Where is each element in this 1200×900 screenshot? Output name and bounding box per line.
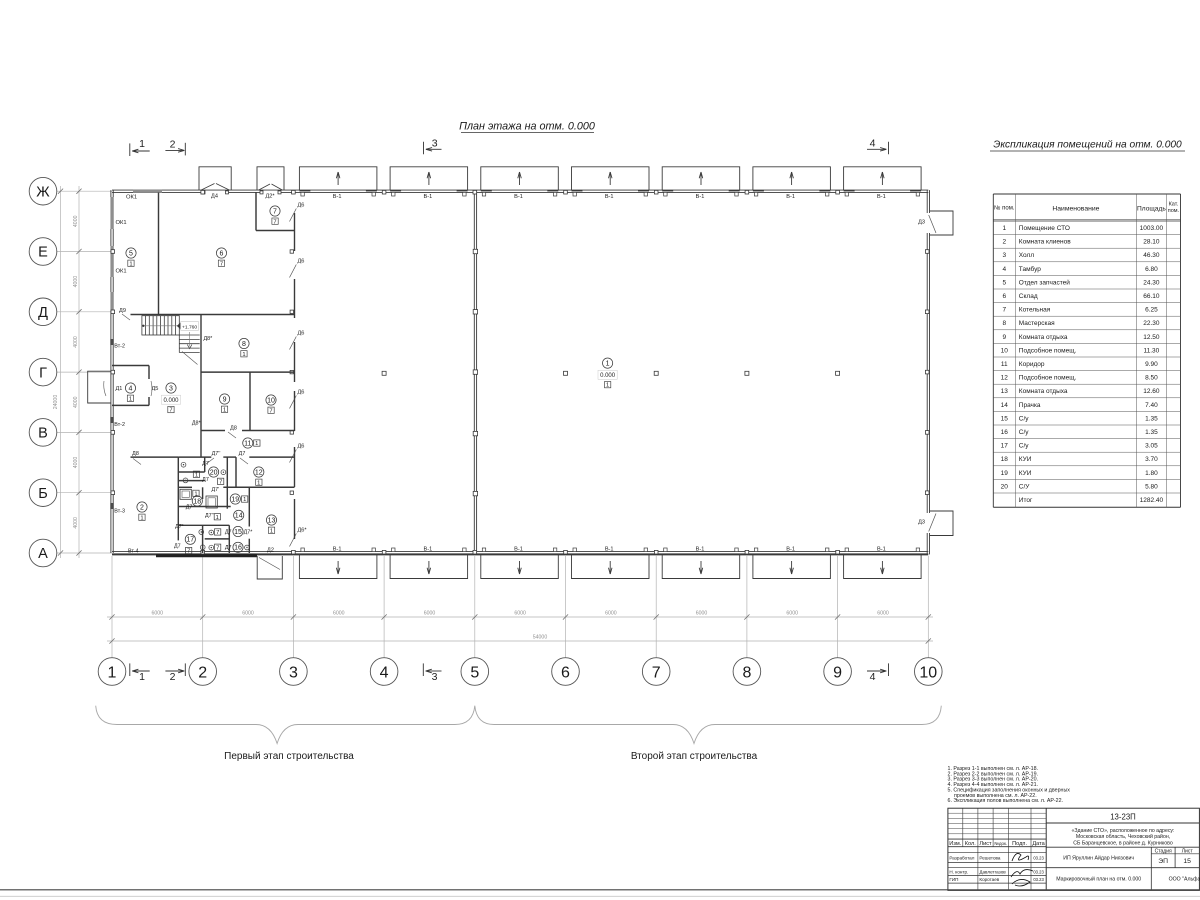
svg-text:Д6*: Д6* [298,528,308,534]
svg-text:ОК1: ОК1 [126,195,137,201]
svg-text:Д7: Д7 [239,451,246,457]
svg-text:3: 3 [432,138,438,150]
svg-text:+1.760: +1.760 [182,324,197,330]
svg-text:Коридор: Коридор [1019,361,1045,368]
svg-text:1003.00: 1003.00 [1140,225,1164,232]
svg-text:24000: 24000 [53,395,59,410]
svg-text:9.90: 9.90 [1145,361,1158,368]
svg-text:14: 14 [1001,402,1009,409]
svg-text:Вт-2: Вт-2 [114,422,125,428]
svg-text:№ пом.: № пом. [994,205,1015,212]
svg-text:6. Экспликация полов выполнена: 6. Экспликация полов выполнена см. л. АР… [948,798,1064,804]
svg-text:7.40: 7.40 [1145,402,1158,409]
svg-text:19: 19 [1001,470,1009,477]
svg-text:1: 1 [194,491,197,497]
svg-text:1: 1 [129,261,132,267]
svg-text:1: 1 [216,515,219,521]
svg-text:24.30: 24.30 [1143,279,1160,286]
svg-text:6.80: 6.80 [1145,266,1158,273]
svg-text:4000: 4000 [73,396,79,408]
svg-text:Д6: Д6 [298,390,305,396]
svg-text:«Здание СТО», расположенное по: «Здание СТО», расположенное по адресу: [1072,828,1175,834]
svg-text:Площадь: Площадь [1137,206,1166,213]
svg-text:Вт-4: Вт-4 [128,549,139,555]
svg-text:Д3: Д3 [918,220,925,226]
svg-text:Д7'': Д7'' [205,513,214,519]
svg-text:В: В [38,426,48,442]
svg-text:КУИ: КУИ [1019,456,1032,463]
svg-text:Д8*: Д8* [192,420,202,426]
svg-text:22.30: 22.30 [1143,320,1160,327]
svg-text:4: 4 [870,671,876,683]
svg-text:6000: 6000 [333,611,345,617]
svg-text:Н. контр.: Н. контр. [949,869,968,874]
svg-text:17: 17 [1001,443,1009,450]
svg-text:1.35: 1.35 [1145,429,1158,436]
svg-text:3: 3 [432,671,438,683]
svg-text:В-1: В-1 [696,547,705,553]
svg-text:В-1: В-1 [424,194,433,200]
svg-text:11.30: 11.30 [1144,347,1160,354]
svg-text:Наименование: Наименование [1052,206,1099,213]
svg-text:Давлетгазов: Давлетгазов [979,869,1006,874]
svg-text:1: 1 [242,352,245,358]
svg-text:6000: 6000 [786,611,798,617]
svg-text:Комната отдыха: Комната отдыха [1019,388,1068,395]
svg-text:Д7': Д7' [211,487,219,493]
svg-text:Подп.: Подп. [1012,841,1027,847]
svg-text:11: 11 [244,440,251,447]
svg-text:6000: 6000 [877,611,889,617]
svg-text:Дата: Дата [1032,841,1045,847]
svg-text:4000: 4000 [73,276,79,288]
svg-text:Стадия: Стадия [1155,848,1172,854]
svg-text:Д5: Д5 [152,386,159,392]
svg-text:В-1: В-1 [877,194,886,200]
svg-text:1: 1 [270,528,273,534]
svg-text:Б: Б [38,486,48,502]
svg-text:2: 2 [198,664,207,681]
svg-text:6000: 6000 [605,611,617,617]
svg-text:В-1: В-1 [514,547,523,553]
svg-text:1: 1 [223,407,226,413]
svg-text:Изм.: Изм. [949,841,961,847]
svg-text:Московская область, Чеховский: Московская область, Чеховский район, [1076,833,1170,840]
svg-text:16: 16 [234,545,242,552]
svg-text:Д7: Д7 [225,545,232,551]
svg-text:А: А [38,546,48,562]
svg-text:Е: Е [38,245,48,261]
svg-text:28.10: 28.10 [1143,239,1160,246]
svg-text:В-1: В-1 [424,547,433,553]
svg-text:Д7: Д7 [202,477,209,483]
svg-text:2: 2 [1002,239,1006,246]
svg-text:12: 12 [255,469,263,476]
svg-text:Комната отдыха: Комната отдыха [1019,334,1068,341]
svg-text:54000: 54000 [533,635,548,641]
svg-text:Первый этап строительства: Первый этап строительства [224,751,354,762]
svg-text:В-1: В-1 [514,194,523,200]
svg-text:7: 7 [216,530,219,536]
svg-text:Г: Г [39,365,47,381]
svg-text:6000: 6000 [424,611,436,617]
svg-text:1.80: 1.80 [1145,470,1158,477]
svg-text:В-1: В-1 [333,547,342,553]
svg-text:С/у: С/у [1019,443,1030,450]
svg-text:Комната клиенов: Комната клиенов [1019,239,1071,246]
svg-text:1: 1 [243,497,246,503]
svg-text:КУИ: КУИ [1019,470,1032,477]
svg-text:7: 7 [219,479,222,485]
svg-text:Д7: Д7 [174,544,181,550]
svg-text:6000: 6000 [696,611,708,617]
svg-text:20: 20 [210,469,218,476]
svg-text:1: 1 [139,671,145,683]
svg-text:1282.40: 1282.40 [1140,497,1164,504]
svg-text:Ж: Ж [36,184,50,200]
svg-text:6.25: 6.25 [1145,307,1158,314]
svg-text:10: 10 [267,397,275,404]
svg-text:7: 7 [652,664,661,681]
svg-text:В-1: В-1 [877,547,886,553]
svg-text:4: 4 [129,385,133,392]
svg-text:Отдел запчастей: Отдел запчастей [1019,278,1070,286]
svg-text:18: 18 [1001,456,1009,463]
svg-text:0.000: 0.000 [163,398,179,404]
svg-text:7: 7 [1002,307,1006,314]
svg-text:пом.: пом. [1168,208,1180,214]
svg-text:7: 7 [273,219,276,225]
svg-text:Итог: Итог [1019,497,1033,504]
svg-text:13: 13 [268,517,276,524]
svg-text:6000: 6000 [242,611,254,617]
svg-text:В-1: В-1 [333,194,342,200]
svg-text:7: 7 [220,261,223,267]
svg-text:1: 1 [257,480,260,486]
svg-text:В-1: В-1 [786,194,795,200]
svg-text:7: 7 [187,549,190,555]
svg-text:В-1: В-1 [605,194,614,200]
svg-text:9: 9 [833,664,842,681]
svg-text:Подсобное помещ.: Подсобное помещ. [1019,346,1077,354]
svg-text:12.50: 12.50 [1143,334,1160,341]
svg-text:Решетова: Решетова [979,856,1001,861]
svg-text:Д8*: Д8* [204,336,214,342]
svg-text:18: 18 [193,498,201,505]
svg-text:3: 3 [289,664,298,681]
svg-text:В-1: В-1 [605,547,614,553]
svg-text:Кат.: Кат. [1169,202,1179,208]
svg-text:ОК1: ОК1 [116,220,127,226]
svg-text:Холл: Холл [1019,252,1035,259]
svg-text:1: 1 [1002,225,1006,232]
svg-text:1: 1 [606,383,609,389]
svg-text:4000: 4000 [73,457,79,469]
svg-text:С/у: С/у [1019,415,1030,422]
svg-text:Тамбур: Тамбур [1019,265,1041,273]
svg-text:9: 9 [223,396,227,403]
svg-text:Д2: Д2 [267,548,274,554]
svg-text:СБ Баранцевское, в районе д. К: СБ Баранцевское, в районе д. Курниково [1073,840,1173,847]
svg-text:Помещение СТО: Помещение СТО [1019,225,1070,232]
svg-text:Д7: Д7 [225,529,232,535]
svg-text:Лист: Лист [1182,848,1194,854]
svg-text:Д8: Д8 [132,451,139,457]
svg-text:Д7'': Д7'' [212,451,221,457]
svg-text:Котельная: Котельная [1019,307,1051,314]
svg-text:7: 7 [269,408,272,414]
svg-text:Второй этап строительства: Второй этап строительства [631,751,758,762]
svg-text:15: 15 [1001,415,1009,422]
svg-text:15: 15 [234,529,242,536]
svg-text:0.000: 0.000 [600,373,616,379]
svg-text:Д7: Д7 [186,504,193,510]
svg-text:ИП Яруллин Айдар Ниязович: ИП Яруллин Айдар Ниязович [1063,855,1134,862]
svg-text:Лист: Лист [979,841,992,847]
svg-text:Прачка: Прачка [1019,402,1041,409]
svg-text:Д4: Д4 [211,194,218,200]
svg-text:6000: 6000 [514,611,526,617]
svg-text:1: 1 [255,441,258,447]
svg-text:4000: 4000 [73,215,79,227]
svg-text:6000: 6000 [152,611,164,617]
svg-text:Экспликация помещений на отм.: Экспликация помещений на отм. 0.000 [993,140,1182,151]
svg-text:Мастерская: Мастерская [1019,320,1055,327]
svg-text:4000: 4000 [73,336,79,348]
svg-text:19: 19 [231,496,239,503]
svg-text:10: 10 [919,664,937,681]
svg-text:Д6: Д6 [298,203,305,209]
svg-text:6: 6 [561,664,570,681]
svg-text:3: 3 [1002,252,1006,259]
svg-text:Д1: Д1 [116,386,123,392]
svg-text:15: 15 [1183,858,1191,865]
svg-text:5: 5 [1002,279,1006,286]
svg-text:ООО "Альфа-Проект": ООО "Альфа-Проект" [1169,877,1200,883]
svg-text:4: 4 [380,664,389,681]
svg-text:13: 13 [1001,388,1009,395]
svg-text:Коротаев: Коротаев [979,877,999,882]
svg-text:ОК1: ОК1 [116,269,127,275]
svg-text:8: 8 [242,341,246,348]
svg-text:12.60: 12.60 [1143,388,1160,395]
svg-text:Маркировочный план на отм. 0.0: Маркировочный план на отм. 0.000 [1056,876,1141,883]
svg-text:План этажа на отм. 0.000: План этажа на отм. 0.000 [459,120,595,132]
svg-text:3.70: 3.70 [1145,456,1158,463]
svg-text:11: 11 [1001,361,1008,368]
svg-text:66.10: 66.10 [1143,293,1160,300]
svg-text:5.80: 5.80 [1145,483,1158,490]
svg-text:14: 14 [235,513,243,520]
svg-text:Д7: Д7 [202,461,209,467]
svg-text:4: 4 [1002,266,1006,273]
svg-text:1.35: 1.35 [1145,415,1158,422]
svg-text:№док.: №док. [994,841,1007,846]
svg-text:13-23П: 13-23П [1110,813,1136,822]
svg-text:03.23: 03.23 [1033,869,1044,874]
svg-text:8: 8 [1002,320,1006,327]
svg-text:Д7*: Д7* [175,524,185,530]
svg-text:Д8: Д8 [230,426,237,432]
svg-text:16: 16 [1001,429,1009,436]
svg-text:3: 3 [169,385,173,392]
svg-text:1: 1 [606,361,610,368]
svg-text:Д6: Д6 [298,331,305,337]
svg-text:10: 10 [1001,347,1009,354]
svg-text:Склад: Склад [1019,293,1038,300]
svg-text:В-1: В-1 [786,547,795,553]
svg-text:2: 2 [170,139,176,151]
svg-text:1: 1 [129,396,132,402]
svg-text:03.23: 03.23 [1033,856,1044,861]
svg-text:Кол.: Кол. [965,841,977,847]
svg-text:5: 5 [129,250,133,257]
svg-text:ЭП: ЭП [1158,858,1168,865]
svg-text:6: 6 [1002,293,1006,300]
svg-text:7: 7 [169,408,172,414]
svg-text:Д: Д [38,305,48,321]
svg-text:Д6: Д6 [298,444,305,450]
svg-text:2: 2 [170,671,176,683]
svg-text:1: 1 [139,138,145,150]
svg-text:6: 6 [220,250,224,257]
svg-text:5: 5 [470,664,479,681]
svg-text:03.23: 03.23 [1033,877,1044,882]
svg-text:С/У: С/У [1019,483,1031,490]
svg-text:В-1: В-1 [696,194,705,200]
svg-text:4000: 4000 [73,517,79,529]
svg-text:1: 1 [195,472,198,478]
svg-text:4: 4 [870,138,876,150]
svg-text:7: 7 [216,545,219,551]
svg-text:1: 1 [108,664,117,681]
svg-text:17: 17 [186,537,194,544]
svg-text:Разработал: Разработал [949,856,974,861]
svg-text:7: 7 [273,208,277,215]
svg-text:Д7*: Д7* [244,529,254,535]
svg-text:С/у: С/у [1019,429,1030,436]
svg-text:9: 9 [1002,334,1006,341]
svg-text:Вт-2: Вт-2 [114,344,125,350]
svg-text:Д6: Д6 [298,259,305,265]
svg-text:1: 1 [140,515,143,521]
svg-text:8: 8 [742,664,751,681]
svg-text:46.30: 46.30 [1143,252,1160,259]
svg-text:20: 20 [1001,483,1009,490]
svg-text:12: 12 [1001,375,1009,382]
svg-text:Д2*: Д2* [265,194,275,200]
svg-text:Д9: Д9 [119,308,126,314]
svg-text:Вт-3: Вт-3 [114,509,125,515]
svg-text:ГИП: ГИП [949,877,958,882]
svg-text:2: 2 [140,504,144,511]
svg-text:Подсобное помещ.: Подсобное помещ. [1019,374,1077,382]
svg-text:Д3: Д3 [918,520,925,526]
svg-text:3.05: 3.05 [1145,443,1158,450]
svg-text:8.50: 8.50 [1145,375,1158,382]
